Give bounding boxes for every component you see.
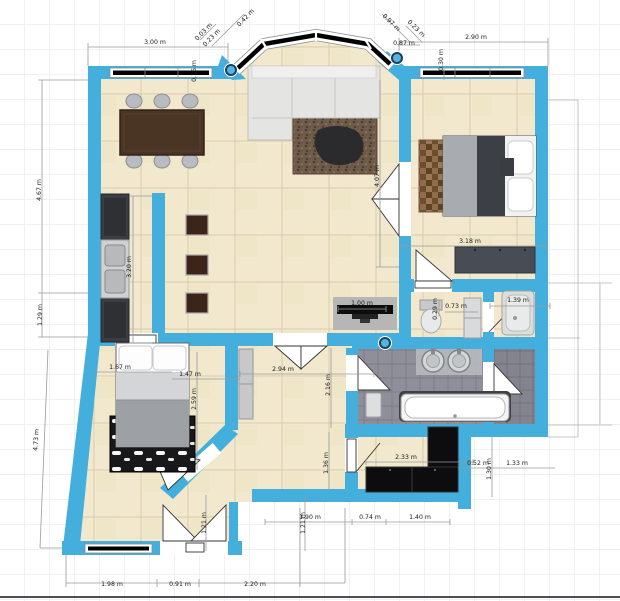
dimension-label: 2.16 m [325,374,332,396]
dimension-label: 0.73 m [445,303,467,310]
dimension-label: 1.30 m [486,458,493,480]
dimension-label: 1.90 m [299,514,321,521]
wall-node-handle[interactable] [226,65,236,75]
dimension-label: 2.33 m [395,454,417,461]
dimension-label: 0.97 m [381,13,402,33]
dimension-label: 1.00 m [351,300,373,307]
canvas-bottom-edge [0,596,620,598]
dimension-label: 1.40 m [409,514,431,521]
dimension-label: 2.20 m [244,581,266,588]
dimension-label: 1.39 m [507,297,529,304]
hall-wardrobe[interactable] [239,349,253,419]
bathtub[interactable] [399,391,511,422]
dimension-label: 2.59 m [191,388,198,410]
dimension-label: 3.00 m [144,39,166,46]
dimension-label: 0.74 m [359,514,381,521]
dimension-label: 1.33 m [506,460,528,467]
bathroom-bin[interactable] [366,393,381,417]
dimension-label: 1.21 m [201,512,208,534]
dimension-label: 0.42 m [236,8,256,29]
dimension-label: 0.91 m [169,581,191,588]
dimension-label: 1.98 m [101,581,123,588]
dimension-label: 1.67 m [109,364,131,371]
dining-table[interactable] [120,110,204,155]
dimension-label: 0.16 m [191,60,198,82]
dimension-label: 1.47 m [179,371,201,378]
dimension-label: 3.20 m [126,256,133,278]
dresser[interactable] [455,247,535,273]
dimension-label: 0.87 m [393,40,415,47]
double-bed-2[interactable] [116,343,189,447]
kitchen-sink[interactable] [101,240,129,298]
dimension-label: 4.73 m [32,429,40,451]
dimension-label: 4.67 m [36,179,43,201]
dimension-label: 1.29 m [37,304,44,326]
dimension-label: 0.30 m [438,49,445,71]
wall-node-handle[interactable] [380,338,390,348]
double-bed[interactable] [443,136,536,216]
dimension-label: 3.18 m [459,238,481,245]
dimension-label: 2.90 m [465,34,487,41]
dimension-label: 4.07 m [374,165,381,187]
window-top-right [420,68,524,78]
dimension-label: 1.36 m [323,452,330,474]
dimension-label: 2.94 m [272,366,294,373]
dimension-label: 0.29 m [432,298,439,320]
window-bottom [85,544,152,553]
wall-node-handle[interactable] [392,53,402,63]
bar-stool[interactable] [186,215,208,313]
bedside-rug[interactable] [419,140,445,212]
floor-plan-canvas[interactable]: 3.00 m0.03 m0.42 m0.23 m0.16 m0.97 m0.23… [0,0,620,601]
